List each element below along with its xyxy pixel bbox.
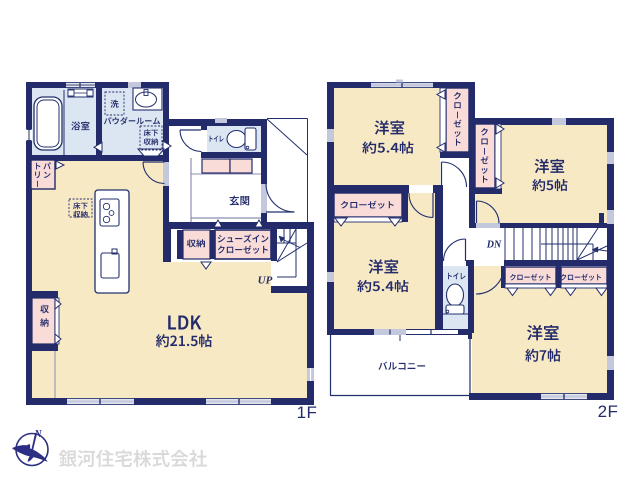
svg-text:1F: 1F xyxy=(297,403,318,422)
svg-text:2F: 2F xyxy=(598,402,619,421)
svg-text:UP: UP xyxy=(258,275,273,287)
svg-text:N: N xyxy=(33,429,42,440)
svg-text:DN: DN xyxy=(486,240,502,251)
